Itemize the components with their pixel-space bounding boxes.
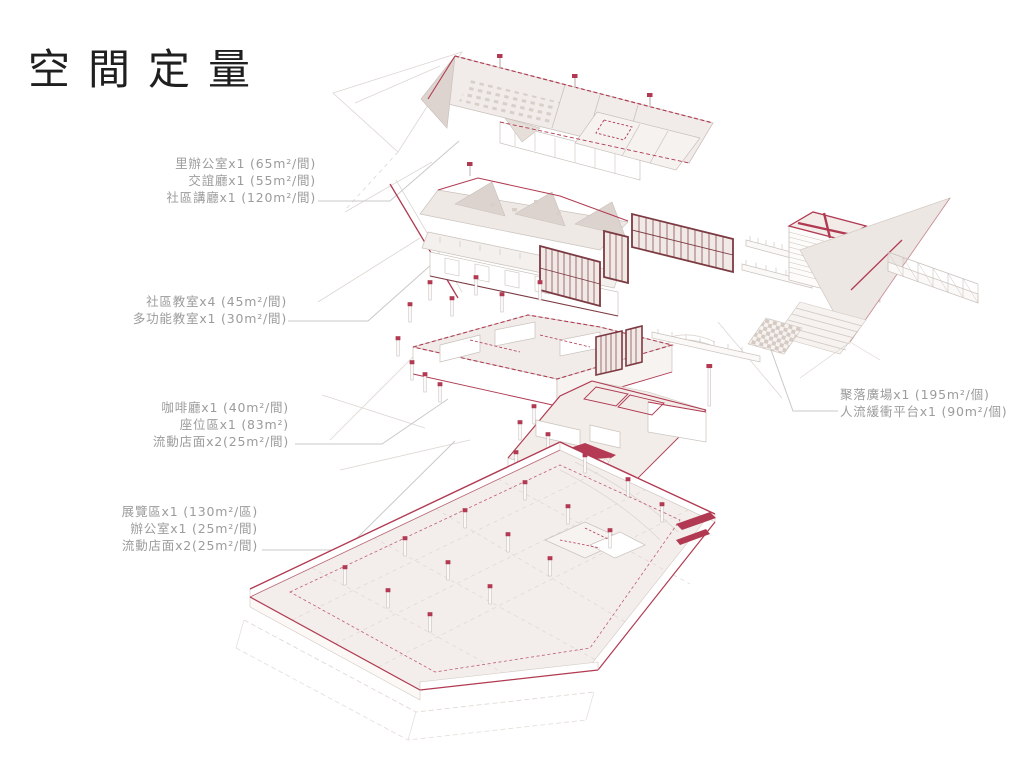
level-classrooms [390, 162, 733, 316]
level-roof [421, 54, 713, 180]
page: 空間定量 里辦公室x1 (65m²/間) 交誼廳x1 (55m²/間) 社區講廳… [0, 0, 1024, 768]
plaza-tower [652, 198, 978, 406]
level-ground [236, 442, 716, 740]
axonometric-drawing [0, 0, 1024, 768]
